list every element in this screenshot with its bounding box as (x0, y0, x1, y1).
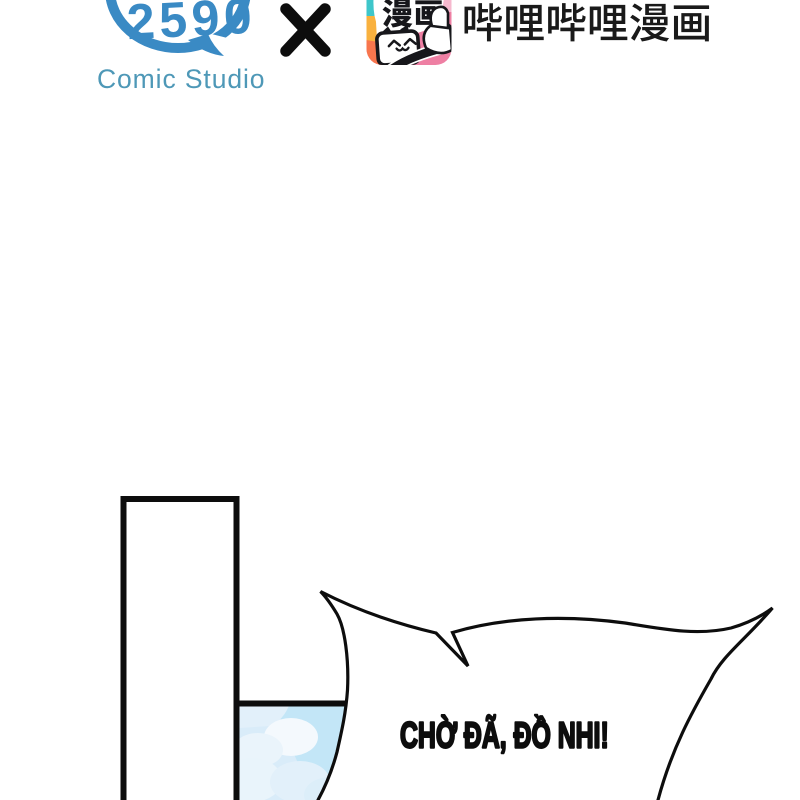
svg-text:CHỜ ĐÃ, ĐỒ NHI!: CHỜ ĐÃ, ĐỒ NHI! (400, 714, 609, 756)
svg-text:Comic Studio: Comic Studio (97, 64, 265, 94)
svg-text:2590: 2590 (126, 0, 258, 50)
